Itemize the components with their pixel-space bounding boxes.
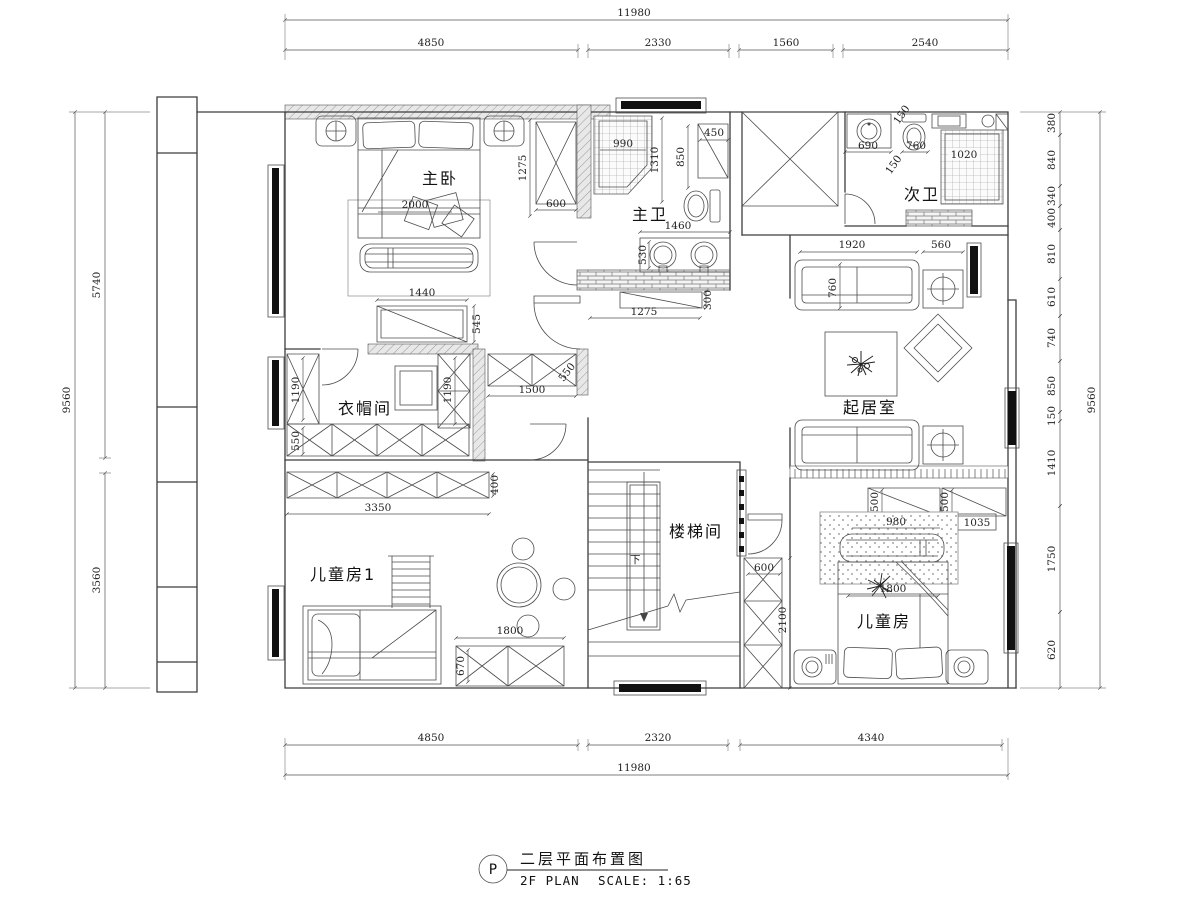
dim-b530: 530 <box>637 245 649 265</box>
floorplan-drawing: 11980 4850 2330 1560 2540 11980 4850 232… <box>0 0 1200 910</box>
dim-m545: 545 <box>471 314 483 334</box>
dim-b450: 450 <box>704 127 724 139</box>
dim-s760: 760 <box>906 140 926 152</box>
window-left-1 <box>268 165 284 317</box>
brick-wall-second-bath <box>906 210 972 226</box>
dim-s690: 690 <box>858 140 878 152</box>
cushion <box>427 193 463 228</box>
room-cloakroom: 1440 545 1190 衣帽间 1190 550 550 1500 400 … <box>287 287 580 514</box>
cabinet-row-2 <box>287 472 489 498</box>
dim-right-seg-2: 840 <box>1046 150 1058 170</box>
dim-st2100: 2100 <box>777 607 789 634</box>
dim-m1440: 1440 <box>409 287 436 299</box>
dim-b990: 990 <box>613 138 633 150</box>
dim-bottom-seg-2: 2320 <box>645 732 672 744</box>
wall-lamp-icon <box>494 121 514 141</box>
window-right-2 <box>1005 388 1019 448</box>
nightstand <box>794 650 836 684</box>
window-bottom <box>614 681 706 695</box>
sofa-top <box>795 260 919 310</box>
dim-k1035: 1035 <box>964 517 991 529</box>
wardrobe-bottom-row <box>287 424 469 456</box>
stair-down-label: 下 <box>630 554 641 566</box>
bed-linens <box>358 150 480 238</box>
door-corridor <box>530 424 566 460</box>
vanity-double-sink <box>640 238 730 272</box>
dim-top-seg-3: 1560 <box>773 37 800 49</box>
room-kids-1: 儿童房1 1800 670 <box>303 538 575 686</box>
room-label-stairwell: 楼梯间 <box>669 522 723 541</box>
dim-k1-670: 670 <box>455 656 467 676</box>
dim-l1920: 1920 <box>839 239 866 251</box>
stair-break-line <box>588 592 740 630</box>
sofa-bottom <box>795 420 919 470</box>
dim-left-total: 9560 <box>61 387 73 414</box>
dim-right-seg-3: 340 <box>1046 186 1058 206</box>
dim-top-seg-4: 2540 <box>912 37 939 49</box>
stair-treads <box>588 470 660 590</box>
floorplan-canvas: 11980 4850 2330 1560 2540 11980 4850 232… <box>0 0 1200 910</box>
interior-walls <box>285 105 1008 688</box>
dim-top-seg-2: 2330 <box>645 37 672 49</box>
side-table-top <box>923 270 963 308</box>
door-cloakroom <box>322 349 358 385</box>
dim-m600: 600 <box>546 198 566 210</box>
dim-right-seg-10: 1410 <box>1046 450 1058 477</box>
dim-bottom-seg-1: 4850 <box>418 732 445 744</box>
dim-l560: 560 <box>931 239 951 251</box>
room-label-master-bath: 主卫 <box>632 205 668 224</box>
title-scale: SCALE: 1:65 <box>598 873 692 888</box>
room-label-kids-2: 儿童房 <box>857 612 911 631</box>
dim-c1190a: 1190 <box>290 377 302 404</box>
dim-right-seg-6: 610 <box>1046 287 1058 307</box>
void-skylight <box>742 112 838 206</box>
dim-top-seg-1: 4850 <box>418 37 445 49</box>
dim-k1-1800: 1800 <box>497 625 524 637</box>
plant-icon <box>847 351 875 376</box>
dim-k980: 980 <box>886 516 906 528</box>
dim-b300: 300 <box>702 290 714 310</box>
bunk-bed <box>303 606 441 684</box>
cabinet-top <box>377 306 467 342</box>
dim-b1460: 1460 <box>665 220 692 232</box>
dim-c1190b: 1190 <box>442 377 454 404</box>
coffee-table <box>825 332 897 396</box>
dim-right-total: 9560 <box>1086 387 1098 414</box>
dim-b850: 850 <box>675 147 687 167</box>
island-cabinet <box>395 366 437 410</box>
dim-m1275: 1275 <box>517 155 529 182</box>
room-label-living: 起居室 <box>843 398 897 417</box>
bench <box>360 244 478 272</box>
lounge-chair-diamond <box>904 314 972 382</box>
dim-right-seg-12: 620 <box>1046 640 1058 660</box>
dim-k500a: 500 <box>869 492 881 512</box>
room-master-bedroom: 主卧 2000 1275 <box>316 116 530 296</box>
cabinet-kids-1 <box>456 646 564 686</box>
room-second-bath: 690 760 150 150 1020 次卫 <box>845 103 1008 224</box>
title-en: 2F PLAN <box>520 873 580 888</box>
dim-bottom-total: 11980 <box>617 762 650 774</box>
cabinet-tall <box>536 122 576 204</box>
door-second-bath <box>845 194 875 224</box>
title-cn: 二层平面布置图 <box>520 850 646 868</box>
dim-right-seg-8: 850 <box>1046 376 1058 396</box>
dim-right-seg-5: 810 <box>1046 244 1058 264</box>
title-bubble-letter: P <box>489 862 497 878</box>
dim-c550a: 550 <box>290 431 302 451</box>
dim-l760: 760 <box>827 278 839 298</box>
wall-lamp-icon <box>326 121 346 141</box>
dim-right-seg-9: 150 <box>1046 406 1058 426</box>
door-master-bedroom <box>534 296 580 349</box>
pillow <box>843 647 892 679</box>
dim-right-seg-1: 380 <box>1046 113 1058 133</box>
hatched-wall-living-bottom <box>790 466 1008 478</box>
dim-c400: 400 <box>489 475 501 495</box>
door-master-bath <box>534 242 577 285</box>
room-label-kids-1: 儿童房1 <box>310 565 376 584</box>
dim-m2000: 2000 <box>402 199 429 211</box>
bunk-ladder <box>388 556 434 608</box>
room-living: 1920 560 760 起居室 <box>795 239 972 470</box>
dim-right-seg-11: 1750 <box>1046 546 1058 573</box>
window-left-2 <box>268 357 284 429</box>
dim-k1800: 1800 <box>880 583 907 595</box>
dim-c3350: 3350 <box>365 502 392 514</box>
dim-b1275: 1275 <box>631 306 658 318</box>
dimension-chain-right: 380 840 340 400 810 610 740 850 150 1410… <box>1020 112 1106 688</box>
room-label-second-bath: 次卫 <box>904 185 940 204</box>
dim-top-total: 11980 <box>617 7 650 19</box>
dim-k500b: 500 <box>939 492 951 512</box>
dim-right-seg-4: 400 <box>1046 208 1058 228</box>
dim-c550b: 550 <box>556 361 578 384</box>
dimension-chain-bottom: 11980 4850 2320 4340 <box>285 732 1008 780</box>
room-kids-2: 500 500 1035 980 1800 儿童房 <box>794 488 1006 684</box>
shower-tray <box>941 130 1003 204</box>
brick-wall-master-bath <box>577 270 730 290</box>
window-top <box>616 98 706 113</box>
dim-c1500: 1500 <box>519 384 546 396</box>
dim-left-seg-2: 3560 <box>91 567 103 594</box>
pillow <box>895 647 943 679</box>
dim-bottom-seg-3: 4340 <box>858 732 885 744</box>
door-frame-strip <box>737 470 746 556</box>
side-table-bottom <box>923 426 963 464</box>
dim-s150a: 150 <box>891 103 912 126</box>
dim-s150b: 150 <box>883 153 904 176</box>
dim-st600: 600 <box>754 562 774 574</box>
room-label-cloakroom: 衣帽间 <box>338 399 392 418</box>
shower-tray <box>594 116 652 194</box>
title-block: P 二层平面布置图 2F PLAN SCALE: 1:65 <box>479 850 692 888</box>
play-circles <box>497 538 575 637</box>
dim-left-seg-1: 5740 <box>91 272 103 299</box>
toilet-icon <box>684 190 720 222</box>
dimension-chain-top: 11980 4850 2330 1560 2540 <box>285 7 1008 60</box>
room-label-master-bedroom: 主卧 <box>422 169 458 188</box>
nightstand <box>946 650 988 684</box>
window-right-1 <box>967 243 981 297</box>
pillow <box>363 121 416 149</box>
pillow <box>419 121 474 149</box>
door-stairwell <box>748 514 782 554</box>
dim-right-seg-7: 740 <box>1046 328 1058 348</box>
dim-s1020: 1020 <box>951 149 978 161</box>
dimension-chain-left: 9560 5740 3560 <box>61 112 150 688</box>
dim-b1310: 1310 <box>649 147 661 174</box>
washer-icon <box>932 114 1008 130</box>
window-left-3 <box>268 586 284 660</box>
room-stairwell: 下 楼梯间 600 2100 <box>588 470 790 688</box>
